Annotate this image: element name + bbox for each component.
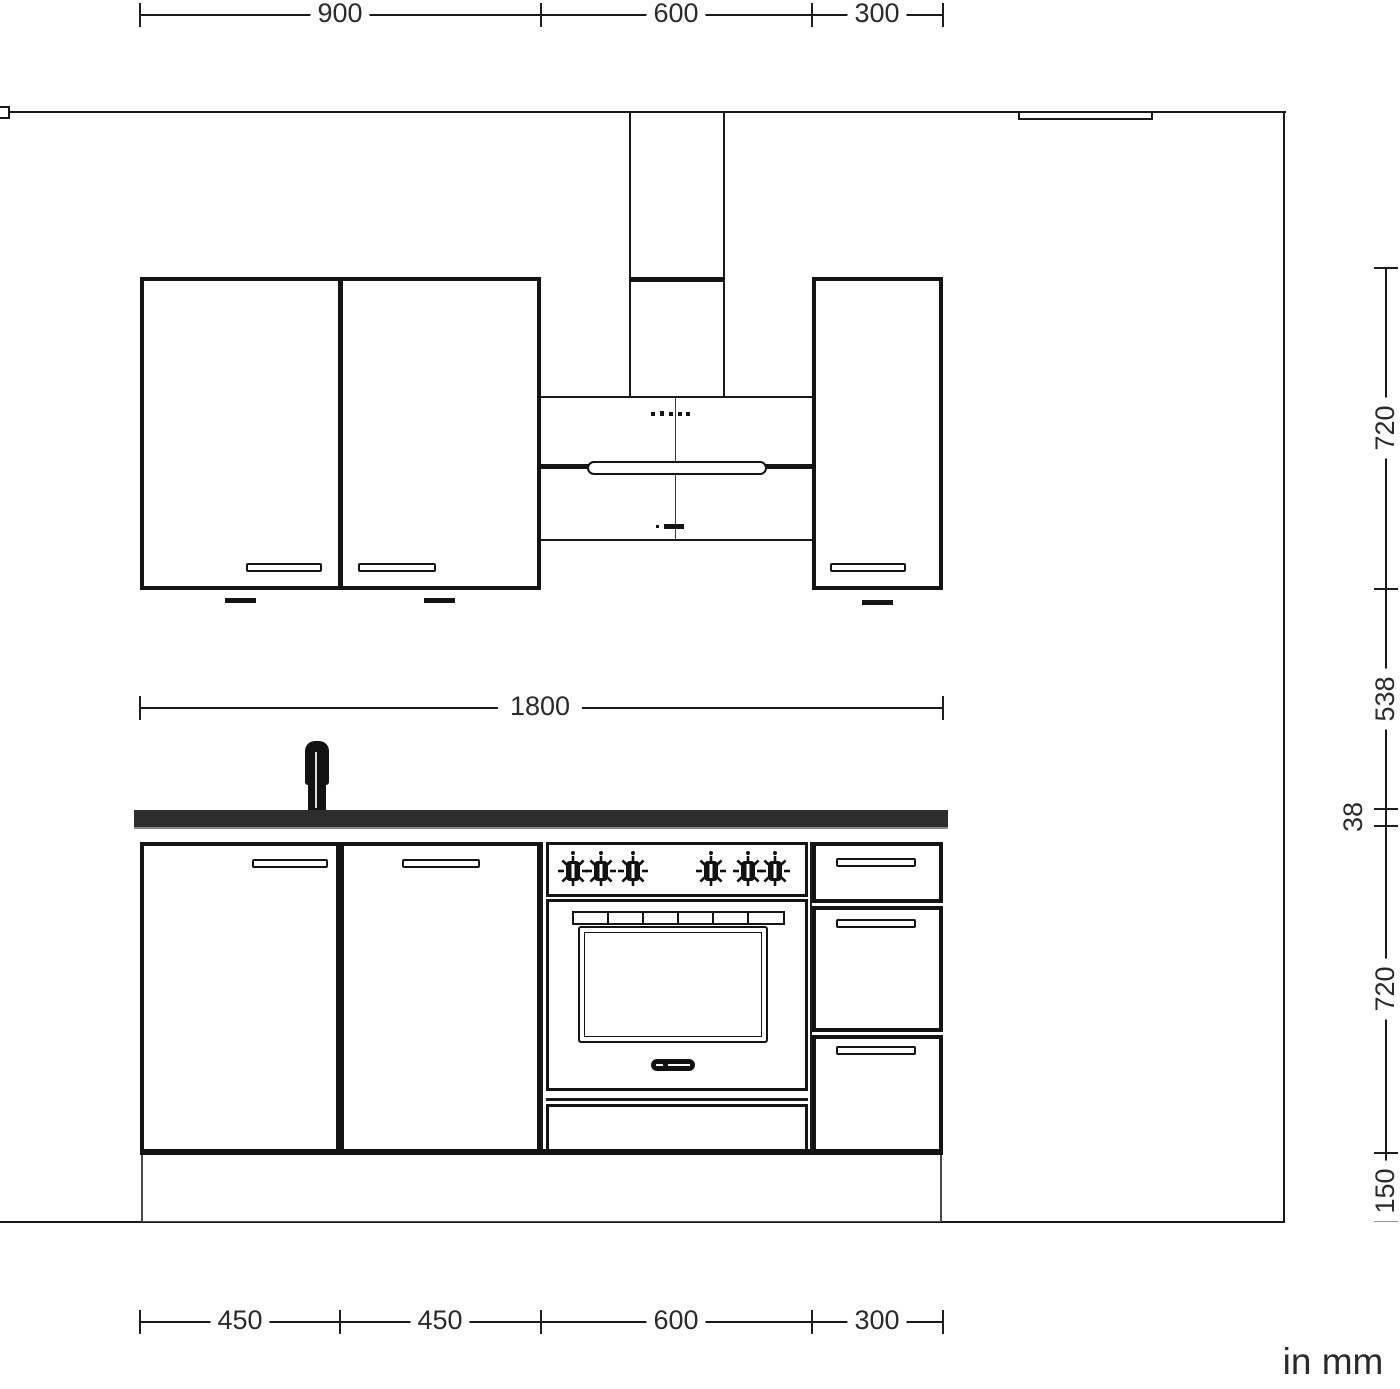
- dim-label-right-720-upper: 720: [1371, 397, 1400, 458]
- oven-window-inner: [584, 932, 762, 1037]
- worktop-slab: [134, 810, 948, 827]
- hood-control-dot: [651, 412, 655, 416]
- wall-cabinet-door2-handle: [358, 563, 436, 572]
- drawer-1: [812, 842, 943, 903]
- oven-vent-slot: [642, 911, 680, 925]
- dim-label-1800: 1800: [498, 692, 582, 722]
- wall-cabinet-door-divider: [338, 277, 343, 590]
- dim-label-right-720-lower: 720: [1371, 958, 1400, 1019]
- under-cabinet-mount-mark: [862, 600, 893, 605]
- oven-badge-text-mark: [656, 1064, 663, 1066]
- worktop-underside-line: [134, 827, 948, 829]
- dim-tick: [339, 1310, 341, 1334]
- plinth: [141, 1155, 942, 1222]
- burner-knob-icon: [694, 851, 728, 891]
- dim-tick: [942, 3, 944, 27]
- drawer-2-handle: [836, 919, 916, 928]
- base-door-2-handle: [402, 859, 480, 868]
- dim-tick: [139, 3, 141, 27]
- oven-vent-slot: [677, 911, 715, 925]
- hood-light-mark-dot: [656, 525, 659, 528]
- dim-label-bottom-300: 300: [847, 1306, 906, 1336]
- range-lower-front: [546, 1104, 808, 1153]
- dim-tick: [139, 1310, 141, 1334]
- drawer-1-handle: [836, 858, 916, 867]
- dim-tick: [942, 1310, 944, 1334]
- under-cabinet-mount-mark: [225, 598, 256, 603]
- faucet-head: [305, 741, 329, 785]
- dim-tick: [1374, 267, 1398, 269]
- wall-cabinet-right-handle: [830, 563, 906, 572]
- wall-cabinet-door1-handle: [246, 563, 322, 572]
- dim-tick: [540, 3, 542, 27]
- dim-label-right-38: 38: [1339, 794, 1369, 840]
- drawer-3-handle: [836, 1046, 916, 1055]
- oven-vent-slot: [607, 911, 645, 925]
- hood-control-dot: [678, 412, 682, 416]
- kitchen-elevation-drawing: 900 600 300: [0, 0, 1400, 1389]
- hood-light-mark: [664, 524, 684, 529]
- dim-tick: [139, 696, 141, 720]
- base-door-1-handle: [252, 859, 328, 868]
- duct-left-line: [629, 113, 631, 397]
- hood-handle-bar: [587, 461, 767, 475]
- base-door-2: [340, 842, 541, 1153]
- dim-tick: [1374, 1152, 1398, 1154]
- base-door-1: [140, 842, 340, 1153]
- under-cabinet-mount-mark: [424, 598, 455, 603]
- dim-label-top-900: 900: [310, 0, 369, 29]
- dim-tick: [1374, 588, 1398, 590]
- dim-tick: [1374, 808, 1398, 810]
- dim-tick: [811, 1310, 813, 1334]
- dim-label-bottom-450a: 450: [210, 1306, 269, 1336]
- burner-knob-icon: [616, 851, 650, 891]
- hood-bottom-line: [541, 539, 812, 541]
- dim-tick: [942, 696, 944, 720]
- hood-control-dot: [686, 412, 690, 416]
- oven-rail-line: [546, 1098, 808, 1101]
- dim-tick: [540, 1310, 542, 1334]
- oven-badge-text-mark: [668, 1064, 690, 1066]
- right-wall-line: [1283, 111, 1285, 1223]
- dim-tick: [811, 3, 813, 27]
- hood-top-line: [541, 396, 812, 398]
- units-note: in mm: [1283, 1341, 1384, 1383]
- dim-label-top-300: 300: [847, 0, 906, 29]
- hood-control-dot: [669, 412, 673, 416]
- dim-label-right-150: 150: [1371, 1160, 1400, 1221]
- oven-vent-slot: [747, 911, 785, 925]
- burner-knob-icon: [758, 851, 792, 891]
- dim-label-right-538: 538: [1371, 668, 1400, 729]
- duct-right-line: [723, 113, 725, 397]
- dim-label-bottom-600: 600: [646, 1306, 705, 1336]
- dim-label-top-600: 600: [646, 0, 705, 29]
- dim-tick: [1374, 825, 1398, 827]
- dim-label-bottom-450b: 450: [410, 1306, 469, 1336]
- oven-vent-slot: [712, 911, 750, 925]
- range-left-divider: [541, 842, 543, 1153]
- burner-knob-icon: [584, 851, 618, 891]
- wall-notch: [1018, 111, 1153, 120]
- oven-vent-slot: [572, 911, 610, 925]
- duct-flange: [629, 277, 725, 282]
- wall-cabinet-right-body: [812, 277, 943, 590]
- faucet-highlight: [315, 752, 317, 808]
- hood-control-dot: [660, 411, 664, 416]
- faucet-shaft: [308, 783, 326, 812]
